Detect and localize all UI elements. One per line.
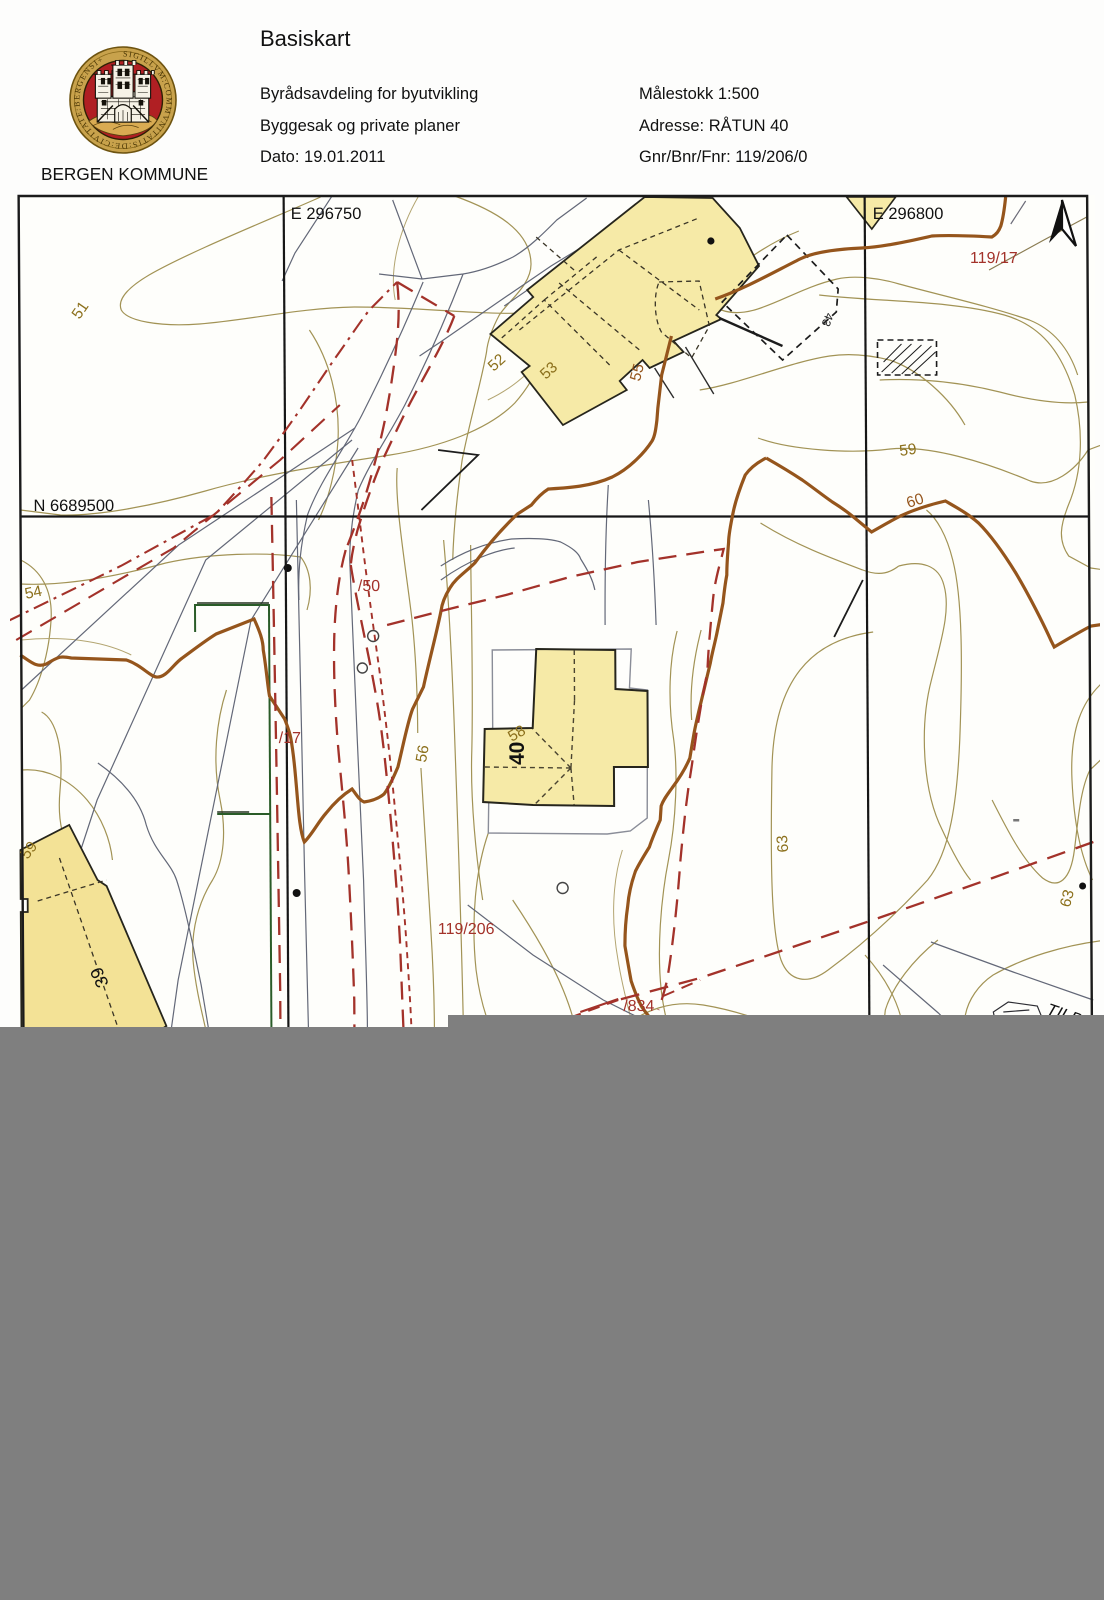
svg-text:119/206: 119/206: [438, 921, 495, 938]
svg-text:N 6689500: N 6689500: [33, 497, 114, 515]
svg-text:/17: /17: [279, 730, 301, 747]
svg-text:BERGEN KOMMUNE: BERGEN KOMMUNE: [41, 164, 208, 184]
svg-text:Byrådsavdeling for byutvikling: Byrådsavdeling for byutvikling: [260, 85, 478, 103]
svg-text:Byggesak og private planer: Byggesak og private planer: [260, 117, 460, 135]
svg-text:40: 40: [506, 742, 529, 765]
svg-text:59: 59: [898, 441, 918, 460]
svg-text:Adresse: RÅTUN 40: Adresse: RÅTUN 40: [639, 116, 788, 135]
svg-text:Målestokk 1:500: Målestokk 1:500: [639, 85, 759, 103]
svg-text:E 296750: E 296750: [291, 205, 362, 223]
svg-text:/50: /50: [358, 578, 380, 595]
svg-text:63: 63: [774, 834, 793, 853]
svg-text:119/17: 119/17: [970, 250, 1018, 267]
svg-text:Gnr/Bnr/Fnr: 119/206/0: Gnr/Bnr/Fnr: 119/206/0: [639, 148, 807, 166]
svg-text:Basiskart: Basiskart: [260, 26, 350, 51]
svg-text:56: 56: [413, 744, 433, 764]
svg-text:/834: /834: [623, 998, 654, 1015]
svg-text:E 296800: E 296800: [873, 205, 944, 223]
svg-text:Dato: 19.01.2011: Dato: 19.01.2011: [260, 148, 385, 166]
